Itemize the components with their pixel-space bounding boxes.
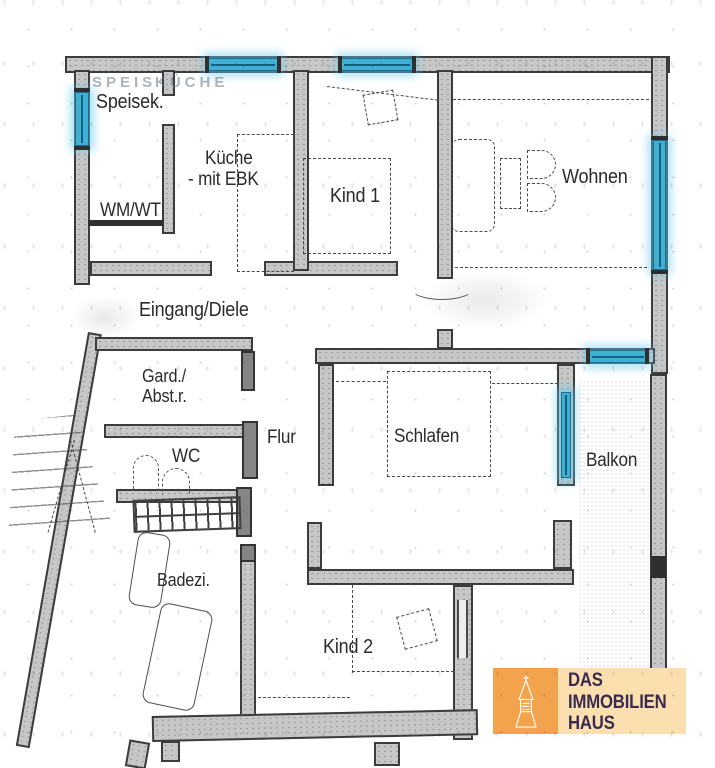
window-post bbox=[651, 136, 668, 140]
room-label-kueche: Küche - mit EBK bbox=[188, 148, 266, 190]
dashed-line bbox=[352, 671, 454, 672]
church-tower-icon bbox=[503, 673, 549, 729]
company-logo: DAS IMMOBILIEN HAUS bbox=[493, 668, 686, 734]
window-post bbox=[412, 56, 416, 73]
balcony-rail-post bbox=[651, 556, 666, 578]
wall-stub bbox=[125, 739, 150, 768]
wall-diele-top-left bbox=[90, 261, 212, 276]
ghost-label-speis: SPEIS bbox=[92, 74, 156, 91]
dashed-line bbox=[492, 383, 558, 384]
wohnen-chair-outline bbox=[527, 183, 556, 212]
room-label-schlafen: Schlafen bbox=[394, 426, 466, 448]
window-post bbox=[277, 56, 281, 73]
scan-smudge bbox=[420, 270, 550, 330]
schlafen-bed-outline bbox=[387, 371, 491, 477]
window-post bbox=[74, 146, 90, 150]
room-label-balkon: Balkon bbox=[586, 450, 643, 472]
door-post bbox=[240, 544, 256, 562]
wall-kind2-bottom bbox=[152, 709, 478, 742]
wall-stub-diele bbox=[437, 329, 453, 349]
dashed-line bbox=[455, 267, 647, 268]
window-post bbox=[205, 56, 209, 73]
room-label-wohnen: Wohnen bbox=[562, 166, 635, 189]
window-post bbox=[645, 348, 649, 364]
logo-wordmark: DAS IMMOBILIEN HAUS bbox=[558, 668, 686, 734]
logo-line-1: DAS bbox=[568, 670, 672, 692]
room-label-wc: WC bbox=[172, 446, 203, 468]
wall-stairwell-slant bbox=[16, 332, 102, 748]
wall-cap bbox=[307, 522, 322, 569]
dashed-line bbox=[336, 381, 386, 382]
wall-bad-kind2 bbox=[240, 560, 256, 728]
room-label-eingang: Eingang/Diele bbox=[139, 299, 261, 322]
room-label-flur: Flur bbox=[267, 427, 299, 449]
wohnen-chair-outline bbox=[527, 150, 556, 179]
entry-corridor-stub bbox=[374, 742, 400, 766]
bathtub-outline bbox=[141, 602, 214, 713]
window-wohnen bbox=[653, 140, 666, 270]
wc-sink-outline bbox=[162, 468, 190, 495]
dashed-line bbox=[453, 99, 649, 100]
window-post bbox=[74, 88, 90, 92]
kind2-desk-outline bbox=[396, 608, 438, 650]
balcony-door-window bbox=[589, 350, 647, 363]
stairs-hatching bbox=[0, 412, 116, 541]
wc-toilet-outline bbox=[133, 455, 159, 491]
scan-texture bbox=[578, 380, 650, 690]
logo-line-2: IMMOBILIEN bbox=[568, 692, 672, 714]
room-label-kind1: Kind 1 bbox=[330, 185, 386, 208]
logo-line-3: HAUS bbox=[568, 713, 672, 735]
wall-cap bbox=[241, 351, 255, 391]
wall-balkon-right bbox=[650, 374, 667, 712]
window-kind1 bbox=[341, 58, 413, 71]
wohnen-chair-outline bbox=[500, 158, 521, 209]
window-kind2 bbox=[457, 600, 468, 658]
floor-plan: SPEIS KÜCHE bbox=[0, 0, 715, 768]
wohnen-table-outline bbox=[451, 139, 495, 232]
window-post bbox=[651, 270, 668, 274]
room-label-kind2: Kind 2 bbox=[323, 636, 379, 659]
window-speisek bbox=[75, 92, 89, 146]
wall-schlafen-bottom bbox=[307, 569, 574, 585]
logo-orange-tile bbox=[493, 668, 558, 734]
room-label-badezi: Badezi. bbox=[157, 570, 216, 591]
wall-cap bbox=[553, 520, 572, 569]
window-post bbox=[586, 348, 590, 364]
ghost-label-kueche: KÜCHE bbox=[155, 74, 228, 91]
wall-schlafen-left bbox=[318, 364, 334, 486]
dashed-line bbox=[258, 697, 350, 698]
door-post bbox=[242, 421, 258, 479]
room-label-gard: Gard./ Abst.r. bbox=[142, 366, 192, 406]
room-label-wmwt: WM/WT bbox=[100, 200, 168, 222]
room-label-speisek: Speisek. bbox=[96, 91, 171, 114]
dashed-line bbox=[352, 585, 353, 673]
window-schlafen bbox=[561, 392, 571, 478]
window-post bbox=[338, 56, 342, 73]
radiator bbox=[132, 496, 241, 533]
wall-flur bbox=[104, 424, 250, 438]
window-kueche bbox=[208, 58, 278, 71]
wall-stub bbox=[161, 741, 180, 762]
scan-smudge bbox=[70, 295, 140, 340]
